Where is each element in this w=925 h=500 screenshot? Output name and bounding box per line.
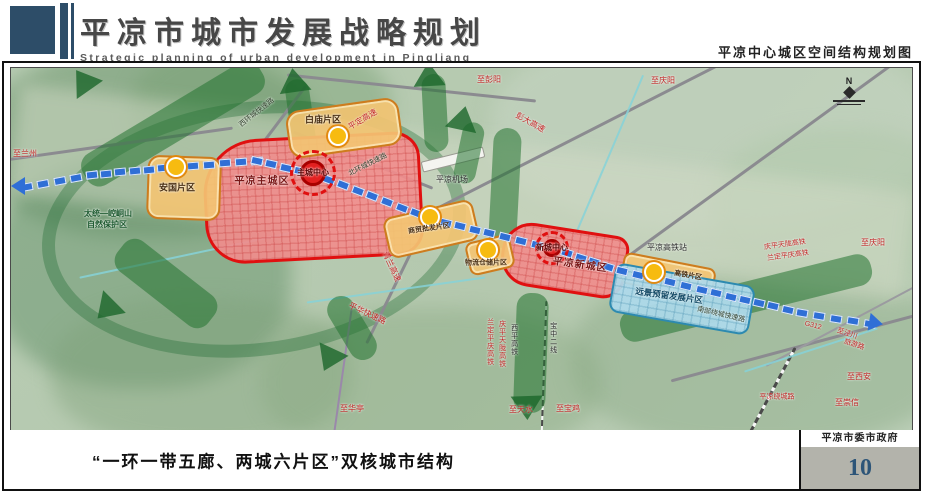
- map-sheet-title: 平凉中心城区空间结构规划图: [718, 42, 913, 61]
- page: 平凉市城市发展战略规划 Strategic planning of urban …: [0, 0, 925, 500]
- axis-dash: [203, 160, 216, 169]
- compass-north-icon: N: [829, 76, 869, 120]
- sheet-frame: N 至兰州至彭阳至庆阳彭大高速平定高速北环城快速路西环城快速路白庙片区安国片区平…: [2, 61, 921, 491]
- label-anguo: 安国片区: [159, 183, 195, 192]
- axis-dash: [100, 169, 113, 178]
- label-to-chongxin: 至崇信: [835, 399, 859, 407]
- label-main-city: 平凉主城区: [235, 177, 290, 188]
- header-logo-block: [10, 6, 55, 54]
- info-box: 平凉市委市政府 10: [799, 430, 919, 489]
- axis-dash: [829, 314, 842, 324]
- compass-scale-bar: [833, 100, 865, 102]
- label-nature-reserve-1: 太统—崆峒山: [84, 210, 132, 218]
- label-to-tianshui: 至天水: [509, 406, 533, 414]
- axis-dash: [812, 311, 825, 321]
- label-to-pengyang: 至彭阳: [477, 76, 501, 84]
- node-logistics: [480, 242, 496, 258]
- label-to-huating: 至华亭: [340, 405, 364, 413]
- caption-row: “一环一带五廊、两城六片区”双核城市结构 平凉市委市政府 10: [4, 430, 919, 489]
- label-to-qingyang-right: 至庆阳: [861, 239, 885, 247]
- label-to-lanzhou: 至兰州: [13, 150, 37, 158]
- org-label: 平凉市委市政府: [801, 430, 919, 448]
- label-to-xian: 至西安: [847, 373, 871, 381]
- label-logistics: 物流仓储片区: [465, 259, 507, 266]
- compass-n-letter: N: [829, 76, 869, 86]
- header-accent-bar-thin: [71, 3, 74, 59]
- corridor-arrowhead: [276, 67, 311, 94]
- label-ring-road-br: 平凉绕城路: [760, 393, 795, 400]
- page-title: 平凉市城市发展战略规划: [80, 8, 487, 52]
- node-commerce: [422, 209, 438, 225]
- axis-dash: [86, 170, 99, 179]
- planning-map: N 至兰州至彭阳至庆阳彭大高速平定高速北环城快速路西环城快速路白庙片区安国片区平…: [10, 67, 913, 431]
- label-landing-pingqing-hsr-s: 兰定平庆高铁: [486, 318, 493, 366]
- label-to-qingyang-top: 至庆阳: [651, 77, 675, 85]
- axis-dash: [219, 159, 232, 168]
- axis-dash: [235, 158, 248, 167]
- axis-dash: [128, 166, 141, 175]
- compass-needle: [843, 86, 856, 99]
- label-qingping-tianlong-hsr-s: 庆平天陇高铁: [498, 320, 505, 368]
- axis-dash: [795, 308, 808, 318]
- axis-dash: [142, 165, 155, 174]
- label-new-center: 新城中心: [536, 244, 568, 252]
- node-anguo: [168, 159, 184, 175]
- axis-dash: [187, 161, 200, 170]
- label-nature-reserve-2: 自然保护区: [87, 221, 127, 229]
- label-baozhong-line2: 宝中二线: [549, 322, 556, 354]
- header-accent-bar: [60, 3, 68, 59]
- label-hsr-station: 平凉高铁站: [647, 244, 687, 252]
- compass-scale-bar2: [837, 104, 861, 106]
- structure-caption: “一环一带五廊、两城六片区”双核城市结构: [92, 447, 455, 472]
- label-baimiao: 白庙片区: [305, 115, 341, 124]
- axis-arrow-left: [11, 177, 25, 195]
- corridor-arrowhead: [412, 67, 445, 87]
- node-hsr: [646, 264, 662, 280]
- label-airport: 平凉机场: [436, 176, 468, 184]
- label-xiping-hsr: 西平高铁: [510, 324, 517, 356]
- node-baimiao: [330, 128, 346, 144]
- corridor-arrowhead: [445, 103, 481, 133]
- label-main-center: 主城中心: [297, 169, 329, 177]
- label-to-baoji: 至宝鸡: [556, 405, 580, 413]
- axis-dash: [114, 168, 127, 177]
- page-number: 10: [801, 447, 919, 489]
